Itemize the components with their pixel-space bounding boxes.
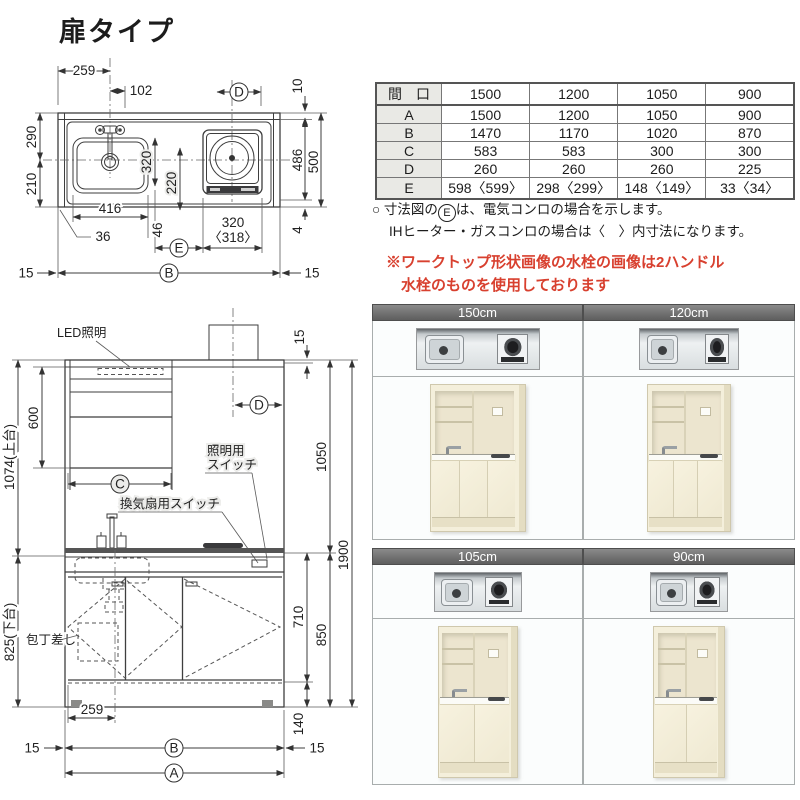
kick-space [649,517,722,527]
col-header-1050: 1050 [618,83,706,105]
cabinet-front-photo [430,384,526,532]
photo-cell-90cm: 90cm [583,548,795,785]
table-row: E 598〈599〉 298〈299〉 148〈149〉 33〈34〉 [376,178,794,200]
switch-box-photo [488,649,499,658]
lower-doors [440,704,509,763]
dim-15-left: 15 [18,266,33,281]
dim-A-circle: A [169,766,178,781]
product-photo-grid: 150cm [372,304,795,785]
burner-photo [485,577,513,606]
knife-holder-outline [78,623,118,661]
col-header-1200: 1200 [530,83,618,105]
spec-table: 間 口 1500 1200 1050 900 A 1500 1200 1050 … [375,82,795,200]
cabinet-photo-150cm [372,377,583,540]
open-shelf-recess [652,391,721,454]
open-shelf-recess [658,633,717,698]
burner-top-photo [699,697,714,701]
callout-led-label: LED照明 [57,326,106,340]
dim-1900: 1900 [336,540,351,570]
worktop-strip [639,328,739,370]
dim-1050: 1050 [314,442,329,472]
dim-E-circle: E [174,241,183,256]
size-header-105cm: 105cm [372,548,583,565]
burner-front [203,543,243,548]
burner-photo [705,334,730,365]
row-label-A: A [376,105,442,124]
dim-220: 220 [164,172,179,195]
cabinet-front-photo [438,626,518,778]
dim-46: 46 [150,222,165,237]
col-header-1500: 1500 [442,83,530,105]
cabinet-front-photo [647,384,731,532]
photo-cell-105cm: 105cm [372,548,583,785]
table-row: B 1470 1170 1020 870 [376,124,794,142]
open-shelf-recess [442,633,508,698]
burner-top-photo [488,697,504,701]
dim-320-inner: 320 [139,151,154,174]
kick-space [440,762,509,773]
dim-850: 850 [314,624,329,647]
burner-photo [497,334,527,365]
countertop-front [65,548,284,553]
dim-B-circle: B [164,266,173,281]
callout-light-switch-line2: スイッチ [207,458,257,472]
lower-doors [649,460,722,518]
size-header-150cm: 150cm [372,304,583,321]
table-row: A 1500 1200 1050 900 [376,105,794,124]
duct-outline [209,325,258,360]
dim-1074-upper: 1074(上台) [2,424,17,490]
led-light-outline [98,369,163,375]
sink-hidden-outline [75,558,149,583]
table-row: D 260 260 260 225 [376,160,794,178]
switch-box-photo [697,649,708,658]
lower-doors [655,704,717,763]
worktop-strip [434,572,522,612]
page-title: 扉タイプ [59,10,175,49]
burner-photo [694,577,720,606]
sink-photo [647,335,678,363]
sink-photo [441,579,474,606]
worktop-photo-120cm [583,321,795,377]
burner-top-photo [700,454,717,458]
row-label-C: C [376,142,442,160]
size-header-120cm: 120cm [583,304,795,321]
worktop-strip [416,328,540,370]
row-label-E: E [376,178,442,200]
front-view-elevation-drawing: LED照明 D C 照明用 スイッチ 換気扇用スイッチ [0,305,372,800]
dim-486: 486 [290,149,305,172]
row-label-B: B [376,124,442,142]
cabinet-photo-120cm [583,377,795,540]
cabinet-photo-90cm [583,619,795,785]
kick-space [655,762,717,773]
dim-320-burner: 320 [222,215,245,230]
cabinet-front-photo [653,626,725,778]
dim-290: 290 [24,126,39,149]
dim-C-circle: C [115,477,125,492]
table-footnote: ○ 寸法図のEは、電気コンロの場合を示します。 IHヒーター・ガスコンロの場合は… [372,200,752,242]
red-disclaimer: ※ワークトップ形状画像の水栓の画像は2ハンドル 水栓のものを使用しております [386,251,724,297]
dim-D-circle-front: D [254,398,264,413]
switch-box-photo [700,407,711,416]
burner-plan [203,130,262,194]
dim-500: 500 [306,151,321,174]
red-disclaimer-line1: ※ワークトップ形状画像の水栓の画像は2ハンドル [386,251,724,274]
leg [262,700,273,707]
dim-416: 416 [99,201,122,216]
cabinet-outline [65,360,284,707]
dim-10: 10 [290,78,305,93]
dim-15-top: 15 [292,329,307,344]
door-swing-mark [184,579,280,678]
row-label-D: D [376,160,442,178]
callout-light-switch-line1: 照明用 [207,444,245,458]
callout-knife-holder: 包丁差し [26,633,76,647]
dim-259-front: 259 [81,702,104,717]
switch-box-photo [492,407,503,416]
dim-259: 259 [73,63,96,78]
circled-E-mark: E [438,204,456,222]
sink-photo [425,335,464,363]
col-header-maguchi: 間 口 [376,83,442,105]
dim-710: 710 [291,606,306,629]
col-header-900: 900 [706,83,794,105]
catalog-page: 扉タイプ [0,0,800,800]
dim-15-right: 15 [304,266,319,281]
table-header-row: 間 口 1500 1200 1050 900 [376,83,794,105]
dim-210: 210 [24,173,39,196]
open-shelf-recess [435,391,514,454]
faucet-front [97,514,126,548]
dim-15-right-front: 15 [309,741,324,756]
footnote-line2: IHヒーター・ガスコンロの場合は〈 〉内寸法になります。 [372,222,752,242]
callout-fan-switch: 換気扇用スイッチ [120,496,220,511]
cabinet-photo-105cm [372,619,583,785]
dim-D-circle: D [234,85,244,100]
dim-102: 102 [130,83,153,98]
dim-B-circle-front: B [169,741,178,756]
table-row: C 583 583 300 300 [376,142,794,160]
switch-box [252,560,267,567]
dim-825-lower: 825(下台) [2,603,17,662]
top-view-plan-drawing: 259 102 D 10 290 210 320 220 486 500 4 [15,50,375,300]
dim-600: 600 [26,407,41,430]
worktop-photo-150cm [372,321,583,377]
sink-photo [656,579,687,606]
dim-15-left-front: 15 [24,741,39,756]
worktop-photo-90cm [583,565,795,619]
dim-318: 〈318〉 [208,230,258,245]
dim-4: 4 [290,226,305,234]
photo-cell-150cm: 150cm [372,304,583,540]
lower-doors [432,460,515,518]
size-header-90cm: 90cm [583,548,795,565]
photo-cell-120cm: 120cm [583,304,795,540]
dim-140: 140 [291,713,306,736]
footnote-line1: ○ 寸法図のEは、電気コンロの場合を示します。 [372,200,752,222]
sink-plan [73,138,148,193]
burner-top-photo [491,454,511,458]
worktop-strip [650,572,728,612]
worktop-photo-105cm [372,565,583,619]
kick-space [432,517,515,527]
red-disclaimer-line2: 水栓のものを使用しております [386,274,724,297]
dim-36: 36 [95,229,110,244]
